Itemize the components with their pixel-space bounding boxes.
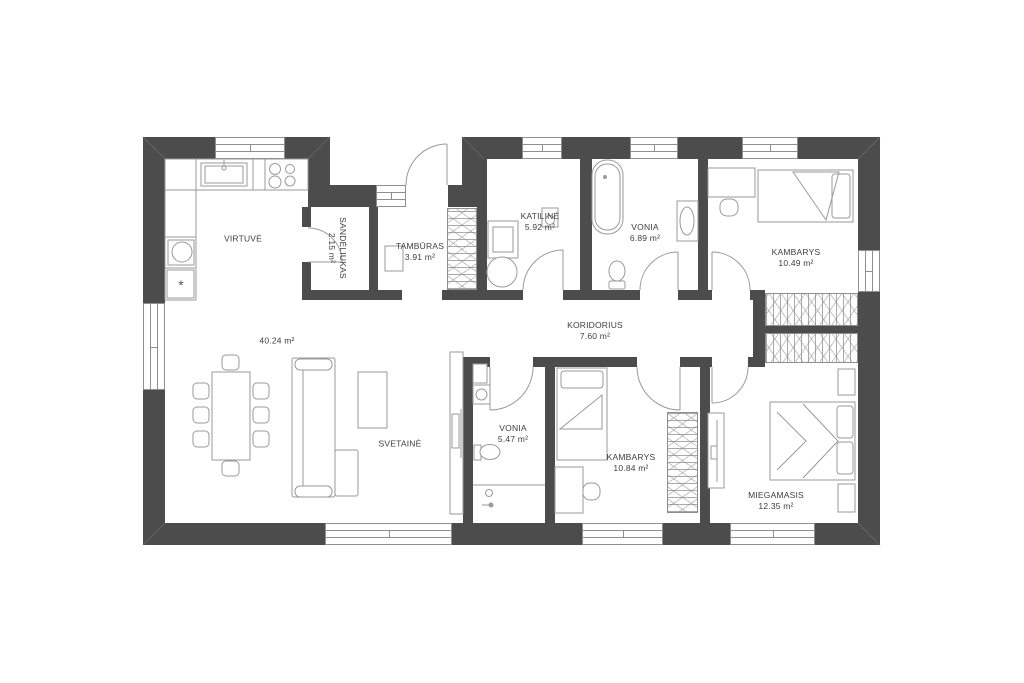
room-label-vonia1: VONIA6.89 m² xyxy=(630,222,660,244)
desk2 xyxy=(555,467,583,513)
washbasin1 xyxy=(677,201,698,241)
bed1 xyxy=(758,170,853,222)
dining-chair xyxy=(253,431,269,447)
fridge-symbol: * xyxy=(178,277,184,293)
vonia1-door-arc xyxy=(640,252,678,290)
kambarys2-door-arc xyxy=(637,367,680,410)
sofa xyxy=(292,358,358,497)
dining-chair xyxy=(193,383,209,399)
room-label-koridorius: KORIDORIUS7.60 m² xyxy=(567,320,623,342)
bed2 xyxy=(557,368,607,460)
dining-chair xyxy=(193,407,209,423)
katiline-door-arc xyxy=(523,250,563,290)
furniture-layer: * xyxy=(0,0,1024,683)
dining-chair xyxy=(253,383,269,399)
room-label-kambarys2: KAMBARYS10.84 m² xyxy=(607,452,656,474)
water-heater xyxy=(473,364,487,383)
toilet1 xyxy=(609,261,625,289)
room-label-vonia2: VONIA5.47 m² xyxy=(498,423,528,445)
room-label-sandeliukas: SANDĖLIUKAS2.15 m² xyxy=(326,217,348,279)
desk-chair1 xyxy=(720,199,738,216)
nightstand-top xyxy=(838,369,855,395)
desk1 xyxy=(708,168,755,197)
bedroom1-furniture xyxy=(708,168,853,222)
boiler-tank xyxy=(487,257,517,287)
room-label-katiline: KATILINĖ5.92 m² xyxy=(521,211,560,233)
room-label-open-area: 40.24 m² xyxy=(259,335,294,346)
dining-chair xyxy=(193,431,209,447)
coffee-table xyxy=(358,372,387,428)
dining-set xyxy=(193,355,269,476)
tv-bench-living xyxy=(450,352,463,514)
desk-chair2 xyxy=(583,483,600,500)
nightstand-bottom xyxy=(838,484,855,512)
shower-drain xyxy=(486,490,493,497)
dining-table xyxy=(212,372,250,460)
front-door-arc xyxy=(406,144,447,185)
dining-chair xyxy=(222,355,239,370)
room-label-tamburas: TAMBŪRAS3.91 m² xyxy=(396,241,444,263)
room-label-miegamasis: MIEGAMASIS12.35 m² xyxy=(748,490,804,512)
door-swing-arcs xyxy=(308,144,750,410)
shower-head xyxy=(489,503,493,507)
floor-plan: * VIRTUVĖ 40.24 m² SVETAINĖ SANDĖLIUKAS2… xyxy=(0,0,1024,683)
vonia2-door-arc xyxy=(490,367,533,410)
miegamasis-door-arc xyxy=(712,367,748,403)
toilet2 xyxy=(474,445,500,461)
dining-chair xyxy=(253,407,269,423)
room-label-svetaine: SVETAINĖ xyxy=(378,438,421,449)
bedroom2-furniture xyxy=(555,368,607,513)
bathtub xyxy=(592,160,623,234)
tv-stand-master xyxy=(708,413,724,488)
kitchen-counter xyxy=(165,159,308,190)
kambarys1-door-arc xyxy=(712,252,750,290)
room-label-kambarys1: KAMBARYS10.49 m² xyxy=(772,247,821,269)
room-label-virtuve: VIRTUVĖ xyxy=(224,233,262,244)
dining-chair xyxy=(222,461,239,476)
